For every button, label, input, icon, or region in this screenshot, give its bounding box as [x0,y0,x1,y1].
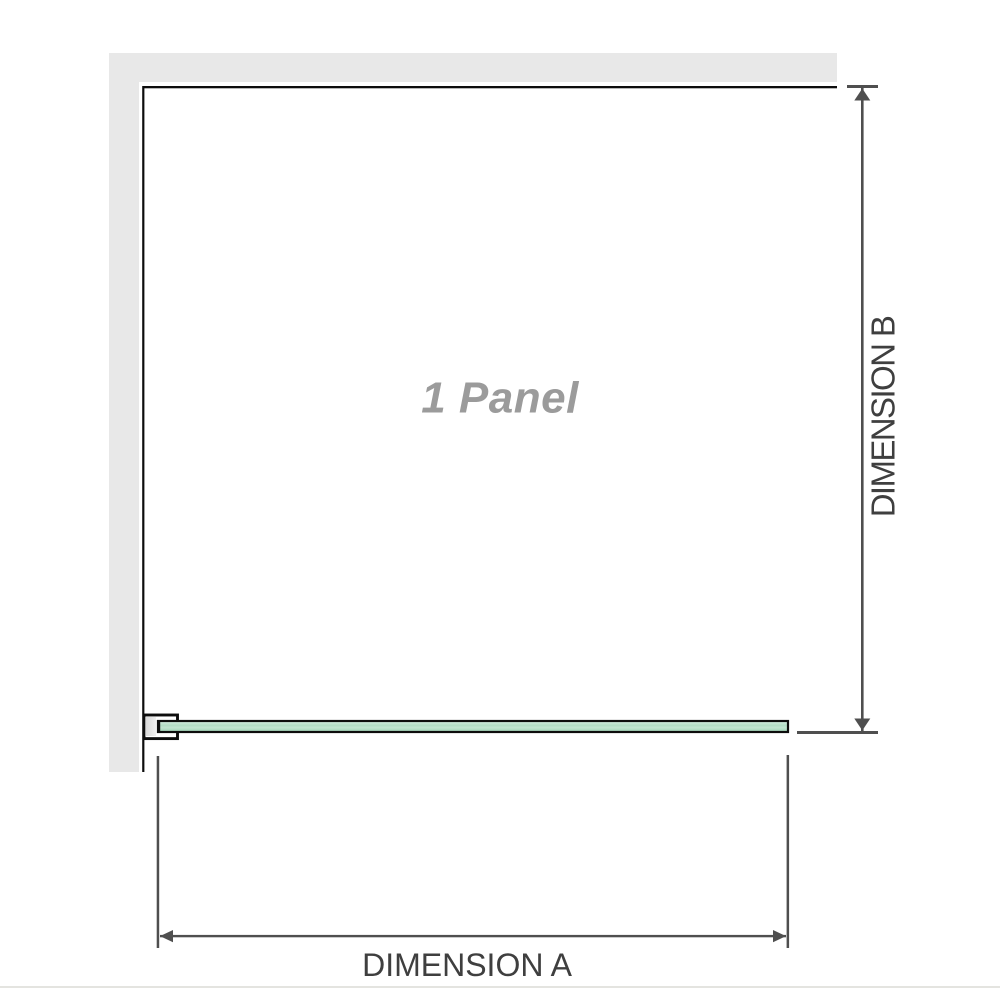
svg-text:1 Panel: 1 Panel [421,374,579,423]
svg-text:DIMENSION A: DIMENSION A [362,947,572,983]
svg-text:DIMENSION B: DIMENSION B [865,316,902,517]
